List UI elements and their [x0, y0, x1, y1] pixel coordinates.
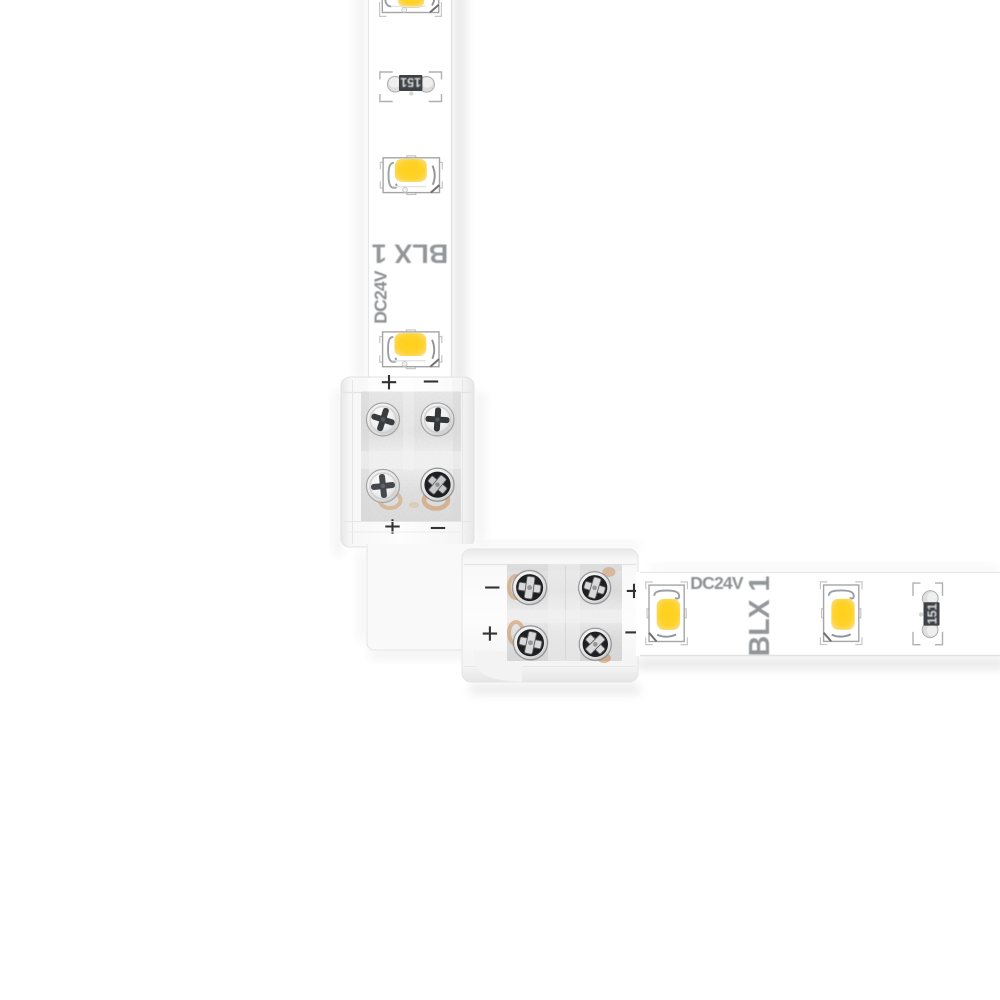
svg-text:DC24V: DC24V	[690, 573, 744, 593]
svg-text:DC24V: DC24V	[371, 270, 391, 324]
svg-text:BLX 1: BLX 1	[372, 239, 449, 269]
svg-text:BLX 1: BLX 1	[744, 575, 776, 656]
